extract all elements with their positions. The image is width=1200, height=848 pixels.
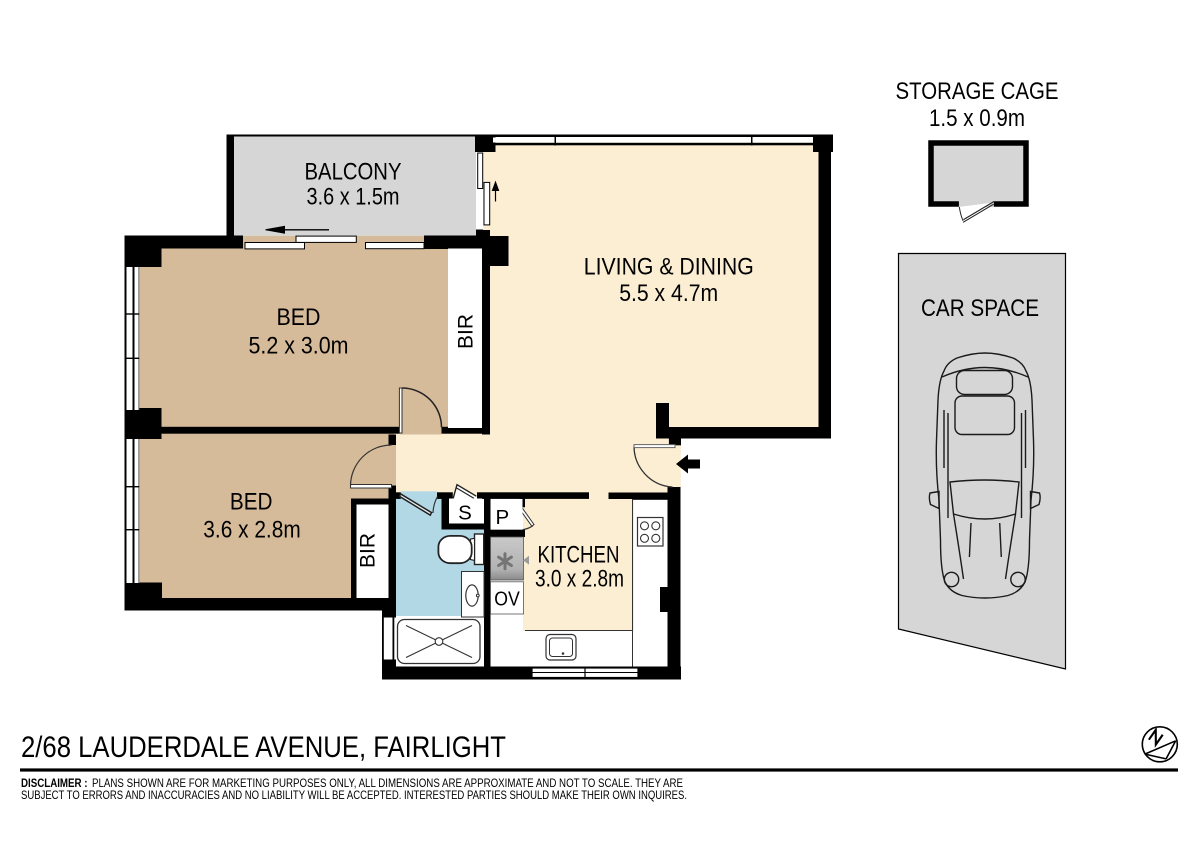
svg-text:BIR: BIR — [455, 314, 478, 349]
svg-text:BED: BED — [277, 304, 321, 331]
svg-text:BALCONY: BALCONY — [305, 159, 402, 186]
svg-text:SUBJECT TO ERRORS AND INACCURA: SUBJECT TO ERRORS AND INACCURACIES AND N… — [21, 789, 687, 802]
svg-text:3.0 x 2.8m: 3.0 x 2.8m — [535, 566, 624, 593]
svg-text:OV: OV — [494, 589, 520, 611]
svg-text:CAR SPACE: CAR SPACE — [921, 295, 1039, 322]
svg-text:KITCHEN: KITCHEN — [538, 542, 620, 569]
svg-text:2/68 LAUDERDALE AVENUE, FAIRLI: 2/68 LAUDERDALE AVENUE, FAIRLIGHT — [21, 731, 506, 764]
svg-text:LIVING & DINING: LIVING & DINING — [584, 253, 754, 280]
svg-text:1.5 x 0.9m: 1.5 x 0.9m — [929, 105, 1025, 132]
svg-text:BED: BED — [230, 488, 273, 515]
svg-text:BIR: BIR — [357, 533, 380, 568]
svg-text:S: S — [458, 502, 472, 525]
svg-text:P: P — [495, 506, 509, 529]
svg-text:5.2 x 3.0m: 5.2 x 3.0m — [249, 333, 349, 360]
svg-text:3.6 x 2.8m: 3.6 x 2.8m — [203, 516, 300, 543]
svg-text:5.5 x 4.7m: 5.5 x 4.7m — [619, 280, 718, 307]
svg-text:STORAGE CAGE: STORAGE CAGE — [896, 78, 1059, 105]
svg-text:3.6 x 1.5m: 3.6 x 1.5m — [307, 184, 400, 211]
